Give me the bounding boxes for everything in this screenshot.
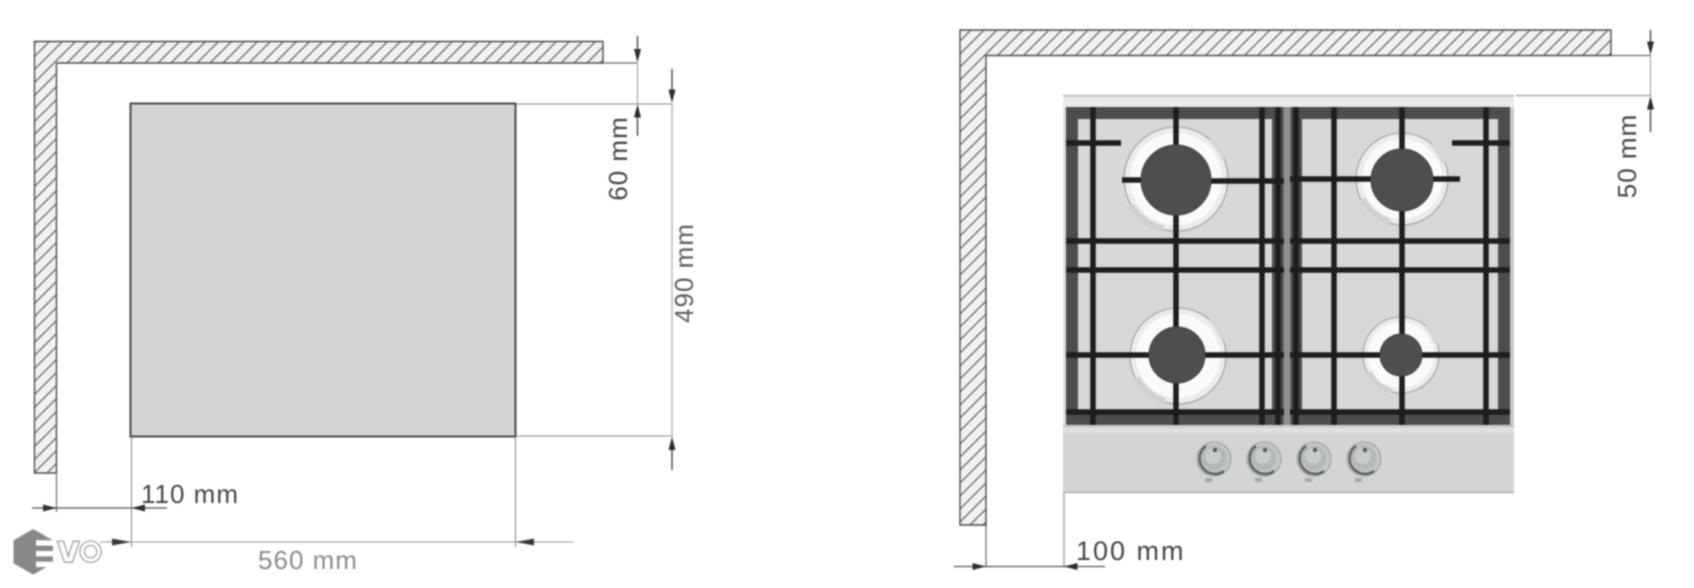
svg-text:560 mm: 560 mm (258, 545, 358, 575)
svg-text:490 mm: 490 mm (669, 223, 699, 323)
svg-text:110 mm: 110 mm (141, 479, 239, 509)
svg-text:60 mm: 60 mm (603, 116, 633, 200)
svg-text:50 mm: 50 mm (1612, 114, 1642, 198)
svg-text:100 mm: 100 mm (1076, 536, 1186, 566)
